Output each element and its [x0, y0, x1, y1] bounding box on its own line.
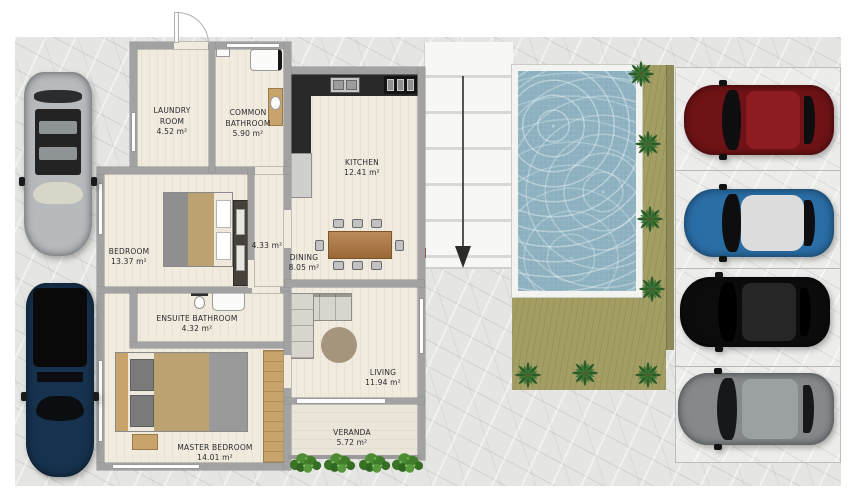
room-label-ensuite: ENSUITE BATHROOM 4.32 m²	[147, 312, 247, 336]
door-opening	[284, 355, 291, 388]
window	[419, 298, 424, 354]
palm-icon	[627, 60, 655, 88]
wall	[285, 280, 424, 287]
dining-chair	[315, 240, 324, 251]
palm-icon	[636, 205, 664, 233]
room-name: MASTER BEDROOM	[177, 443, 252, 454]
windshield	[718, 282, 738, 342]
door-opening	[252, 287, 280, 293]
window	[98, 360, 103, 442]
door-swing-arc	[177, 12, 209, 44]
side-mirror	[719, 256, 727, 262]
bush-icon	[324, 450, 356, 476]
blue-car	[684, 189, 834, 257]
room-label-kitchen: KITCHEN 12.41 m²	[322, 156, 402, 180]
bush-icon	[359, 450, 391, 476]
side-mirror	[714, 444, 722, 450]
stove	[384, 76, 417, 94]
room-area: 8.05 m²	[289, 263, 320, 274]
dining-chair	[352, 219, 363, 228]
bathtub	[212, 290, 245, 311]
toilet-bowl	[194, 296, 205, 309]
bush-icon	[392, 450, 424, 476]
bush-icon	[290, 450, 322, 476]
stall-divider	[676, 170, 840, 171]
room-name: DINING	[290, 253, 318, 264]
open-sunroof	[35, 109, 81, 175]
rear-window	[37, 372, 83, 382]
wall	[130, 42, 137, 172]
side-mirror	[719, 80, 727, 86]
room-name: VERANDA	[333, 428, 371, 439]
room-label-dining: DINING 8.05 m²	[283, 251, 325, 275]
round-rug	[321, 327, 357, 363]
room-name: BEDROOM	[109, 247, 150, 258]
side-mirror	[719, 154, 727, 160]
truck-bed	[33, 288, 87, 368]
door-opening	[248, 260, 254, 288]
rear-window	[804, 200, 815, 246]
dining-chair	[333, 261, 344, 270]
room-label-bedroom: BEDROOM 13.37 m²	[99, 245, 159, 269]
stall-divider	[676, 366, 840, 367]
sliding-door	[296, 398, 386, 404]
palm-icon	[634, 361, 662, 389]
nightstand	[132, 434, 158, 450]
dining-chair	[333, 219, 344, 228]
kitchen-sink	[330, 77, 360, 93]
windshield	[722, 194, 742, 252]
room-name: KITCHEN	[345, 158, 379, 169]
room-area: 13.37 m²	[111, 257, 147, 268]
palm-icon	[514, 361, 542, 389]
dining-chair	[352, 261, 363, 270]
room-name: LIVING	[370, 368, 396, 379]
room-label-master-bedroom: MASTER BEDROOM 14.01 m²	[165, 442, 265, 464]
shower	[250, 49, 282, 71]
dining-chair	[371, 261, 382, 270]
grey-car	[678, 373, 834, 445]
room-area: 4.33 m²	[252, 241, 283, 252]
side-mirror	[719, 184, 727, 190]
swimming-pool	[512, 65, 642, 297]
side-mirror	[714, 368, 722, 374]
rear-window	[804, 96, 815, 144]
palm-icon	[634, 130, 662, 158]
room-area: 12.41 m²	[344, 168, 380, 179]
wall	[130, 342, 291, 348]
master-wardrobe	[263, 350, 286, 463]
master-bed	[115, 352, 248, 432]
window	[131, 112, 136, 152]
side-mirror	[19, 177, 25, 186]
room-area: 4.32 m²	[182, 324, 213, 335]
room-label-common-bathroom: COMMON BATHROOM 5.90 m²	[213, 104, 283, 144]
palm-icon	[571, 359, 599, 387]
pickup-truck	[26, 283, 94, 477]
car-roof	[746, 91, 800, 148]
dining-chair	[395, 240, 404, 251]
rear-window	[803, 385, 814, 434]
rear-window	[34, 90, 83, 103]
room-name: ENSUITE BATHROOM	[156, 314, 237, 325]
side-mirror	[715, 272, 723, 278]
side-mirror	[715, 346, 723, 352]
room-area: 5.72 m²	[337, 438, 368, 449]
fridge	[288, 153, 312, 198]
kitchen-counter-side	[291, 96, 311, 158]
window	[226, 43, 280, 48]
silver-car	[24, 72, 92, 256]
window	[98, 183, 103, 235]
car-roof	[742, 283, 796, 340]
windshield	[33, 182, 83, 204]
rear-window	[800, 288, 811, 336]
windshield	[717, 378, 737, 440]
windshield	[722, 90, 742, 150]
wall	[285, 67, 424, 74]
dining-table	[328, 231, 392, 259]
garden-wall	[666, 65, 674, 350]
room-label-veranda: VERANDA 5.72 m²	[322, 426, 382, 450]
black-car	[680, 277, 830, 347]
room-area: 5.90 m²	[233, 129, 264, 140]
red-car	[684, 85, 834, 155]
direction-arrow-icon	[448, 74, 478, 270]
palm-icon	[638, 275, 666, 303]
wall	[130, 287, 137, 348]
room-area: 11.94 m²	[365, 378, 401, 389]
dining-chair	[371, 219, 382, 228]
room-name: LAUNDRY ROOM	[142, 106, 202, 127]
floor-plan-canvas: LAUNDRY ROOM 4.52 m² COMMON BATHROOM 5.9…	[0, 0, 850, 496]
door-opening	[255, 167, 283, 174]
room-label-laundry: LAUNDRY ROOM 4.52 m²	[142, 102, 202, 142]
side-mirror	[21, 392, 27, 401]
side-mirror	[93, 392, 99, 401]
side-mirror	[91, 177, 97, 186]
car-roof	[742, 379, 798, 438]
bedroom-bed	[163, 192, 233, 267]
stall-divider	[676, 268, 840, 269]
windshield	[36, 396, 85, 421]
room-label-living: LIVING 11.94 m²	[353, 366, 413, 390]
window	[112, 464, 200, 469]
room-area: 14.01 m²	[197, 453, 233, 464]
room-name: COMMON BATHROOM	[213, 108, 283, 129]
car-roof	[741, 195, 804, 251]
room-area: 4.52 m²	[157, 127, 188, 138]
